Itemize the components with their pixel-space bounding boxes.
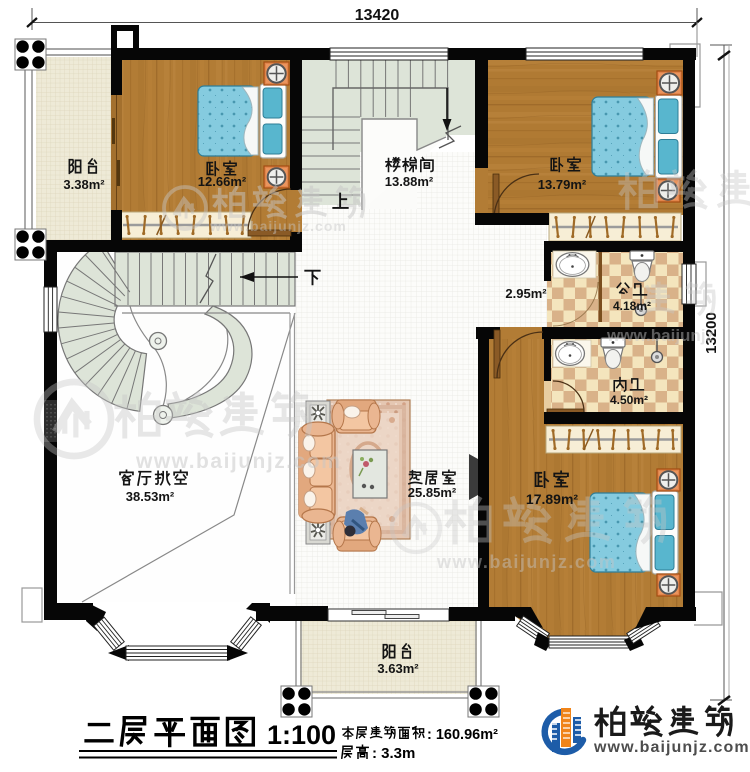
- svg-text:25.85m²: 25.85m²: [408, 485, 457, 500]
- svg-text:3.38m²: 3.38m²: [63, 177, 105, 192]
- svg-text:: 160.96m²: : 160.96m²: [427, 727, 498, 743]
- svg-text:13.79m²: 13.79m²: [538, 177, 587, 192]
- svg-text:13420: 13420: [355, 7, 400, 24]
- svg-text:3.63m²: 3.63m²: [377, 661, 419, 676]
- svg-text:www.baijunjz.com: www.baijunjz.com: [436, 552, 616, 572]
- svg-text:www.baijunjz: www.baijunjz: [606, 326, 714, 345]
- svg-text:2.95m²: 2.95m²: [505, 286, 547, 301]
- svg-text:: 3.3m: : 3.3m: [372, 745, 415, 762]
- svg-text:13.88m²: 13.88m²: [385, 174, 434, 189]
- svg-text:www.baijunjz.com: www.baijunjz.com: [593, 739, 750, 756]
- svg-text:www.baijunjz.com: www.baijunjz.com: [209, 218, 347, 234]
- svg-text:17.89m²: 17.89m²: [526, 491, 578, 507]
- svg-text:38.53m²: 38.53m²: [126, 489, 175, 504]
- svg-text:12.66m²: 12.66m²: [198, 174, 247, 189]
- svg-text:4.18m²: 4.18m²: [613, 299, 651, 313]
- svg-text:4.50m²: 4.50m²: [610, 393, 648, 407]
- svg-text:www.baijunjz.com: www.baijunjz.com: [135, 450, 341, 473]
- svg-text:1:100: 1:100: [267, 720, 336, 750]
